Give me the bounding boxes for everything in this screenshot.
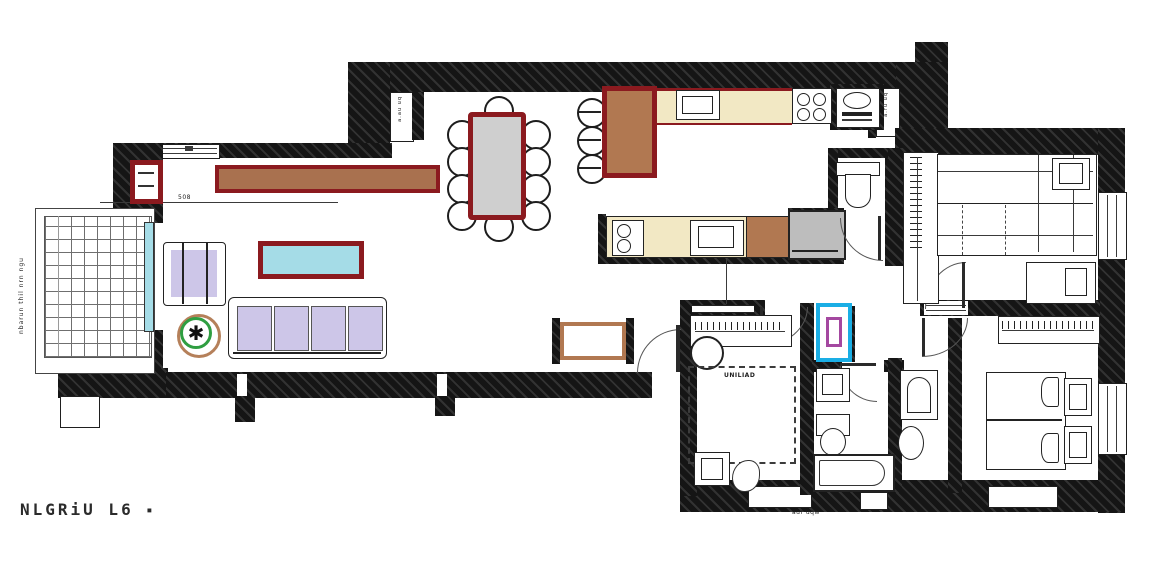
burner [813, 108, 826, 121]
bathtub-inner [819, 460, 885, 486]
balcony-glass-door[interactable] [144, 222, 154, 332]
window-label-left: a.au uq [397, 96, 403, 122]
exterior-bottom-label: aur uqw [792, 509, 820, 516]
kitchen-sink-2 [690, 220, 744, 256]
living-top-window [160, 144, 220, 159]
window-line [1116, 195, 1117, 257]
potted-plant: ✱ [177, 314, 221, 358]
washbasin [816, 368, 850, 402]
balcony-inner-line [58, 216, 59, 356]
plant-icon: ✱ [188, 321, 205, 345]
plan-title-text: NLGRiU L6 [20, 500, 134, 519]
toilet-ensuite [898, 426, 924, 460]
console-post [552, 318, 560, 364]
nightstand [1064, 378, 1092, 416]
plan-title-mark: ▪ [146, 505, 155, 516]
cabinet-mark [138, 172, 154, 174]
sofa-cushion [237, 306, 272, 351]
cooktop-two-burner [612, 220, 644, 256]
shower [900, 370, 938, 420]
closet-rail-line [1002, 330, 1094, 331]
wall-slot [692, 305, 754, 313]
double-bed [986, 372, 1066, 470]
kitchen-sink [676, 90, 720, 120]
highlight-cabinet-inner [826, 317, 842, 347]
sink-basin [698, 226, 734, 248]
wardrobe-dashed-line [1005, 205, 1006, 255]
cabinet-mark [138, 185, 154, 187]
burner [617, 224, 631, 238]
balcony-tiles [44, 216, 152, 358]
pillar-stub [435, 396, 455, 416]
pocket-line [926, 310, 966, 311]
basin-inner [822, 374, 843, 395]
toilet-bowl [820, 428, 846, 456]
desk-chair [690, 336, 724, 370]
fridge-line [792, 250, 838, 252]
nightstand [1064, 426, 1092, 464]
window-right-1 [1098, 192, 1127, 260]
room-label: UNILIAD [724, 372, 755, 379]
closet-top-bedroom [903, 152, 939, 304]
wall-bed2-bath [800, 303, 814, 495]
appliance-oval [843, 92, 871, 109]
stool-line [579, 111, 601, 113]
balcony-side-label: nbarun thil nrn ngu [18, 238, 25, 334]
refrigerator [788, 210, 846, 260]
sofa-base-line [233, 352, 381, 354]
closet-rail-line [695, 331, 785, 332]
window-line [1107, 386, 1108, 452]
nightstand [1052, 158, 1090, 190]
bed-center-line [987, 419, 1062, 421]
nightstand-inner [1059, 163, 1083, 184]
wall-gap [237, 374, 247, 398]
entry-door-arc[interactable] [637, 329, 681, 373]
sofa-cushion [311, 306, 346, 351]
appliance-bar [842, 119, 872, 121]
bed-planned-outline [688, 366, 796, 464]
plant-ring: ✱ [180, 317, 212, 349]
sink-basin [682, 96, 713, 114]
armchair-cushion [171, 250, 217, 297]
counter-cabinet-brown [746, 216, 790, 258]
console-table [560, 322, 626, 360]
wardrobe-dashed-line [962, 205, 963, 255]
nightstand-inner [1069, 384, 1087, 410]
appliance-bar [842, 112, 872, 116]
burner [797, 93, 810, 106]
appliance-unit [836, 88, 880, 128]
dimension-label: 508 [178, 194, 191, 201]
window-mark [185, 146, 193, 151]
console-post [626, 318, 634, 364]
pillow [1041, 377, 1059, 407]
nightstand [694, 452, 730, 486]
dining-table [468, 112, 526, 220]
entry-door-leaf[interactable] [676, 325, 680, 372]
floor-plan: a.ru uq a.au uq [0, 0, 1168, 566]
sofa-cushion [274, 306, 309, 351]
bathroom-door-leaf[interactable] [840, 363, 876, 366]
armchair-line [206, 243, 208, 304]
right-outer-wall [1098, 128, 1125, 513]
closet-rail-ticks [910, 157, 922, 253]
pillow [1065, 268, 1087, 296]
burner [617, 239, 631, 253]
bottom-step-box [60, 396, 100, 428]
nightstand-inner [1069, 432, 1087, 458]
shower-arch [907, 377, 931, 413]
coffee-table [258, 241, 364, 279]
dimension-line-v [726, 258, 727, 304]
armchair-line [182, 243, 184, 304]
nightstand-inner [701, 458, 723, 480]
wall-gap [437, 374, 447, 398]
sofa [228, 297, 387, 359]
armchair [163, 242, 226, 306]
sofa-cushion [348, 306, 383, 351]
window-niche-left: a.au uq [390, 92, 414, 142]
bottom-niche [988, 486, 1058, 508]
sideboard [215, 165, 440, 193]
highlight-cabinet[interactable] [816, 303, 852, 362]
wc-toilet [845, 174, 871, 208]
master-door-leaf[interactable] [922, 318, 925, 356]
stool-line [579, 167, 601, 169]
wing-top-wall [895, 128, 1125, 155]
bed-line-v [1038, 155, 1039, 252]
window-line [1116, 386, 1117, 452]
stove [792, 88, 832, 124]
bottom-niche [860, 492, 888, 510]
burner [797, 108, 810, 121]
kitchen-door-leaf[interactable] [878, 216, 881, 260]
stool-line [579, 139, 601, 141]
kitchen-island [602, 86, 657, 178]
window-right-2 [1098, 383, 1127, 455]
plan-title: NLGRiU L6 ▪ [20, 500, 155, 519]
bathtub [813, 454, 895, 492]
closet-rail-line [917, 157, 918, 301]
pillow [1041, 433, 1059, 463]
single-bed [1026, 262, 1096, 304]
bed-line [938, 203, 1093, 204]
tv-cabinet [130, 160, 163, 204]
window-line [163, 153, 217, 154]
closet-rail-ticks [1002, 321, 1094, 329]
master-closet [998, 316, 1100, 344]
window-line [1107, 195, 1108, 257]
wall-stub-niche-left [412, 92, 424, 140]
kitchen-door-arc[interactable] [840, 218, 883, 261]
pillar-stub [235, 396, 255, 422]
burner [813, 93, 826, 106]
closet-rail-ticks [695, 322, 785, 330]
bedroom-top-door-leaf[interactable] [962, 262, 965, 308]
